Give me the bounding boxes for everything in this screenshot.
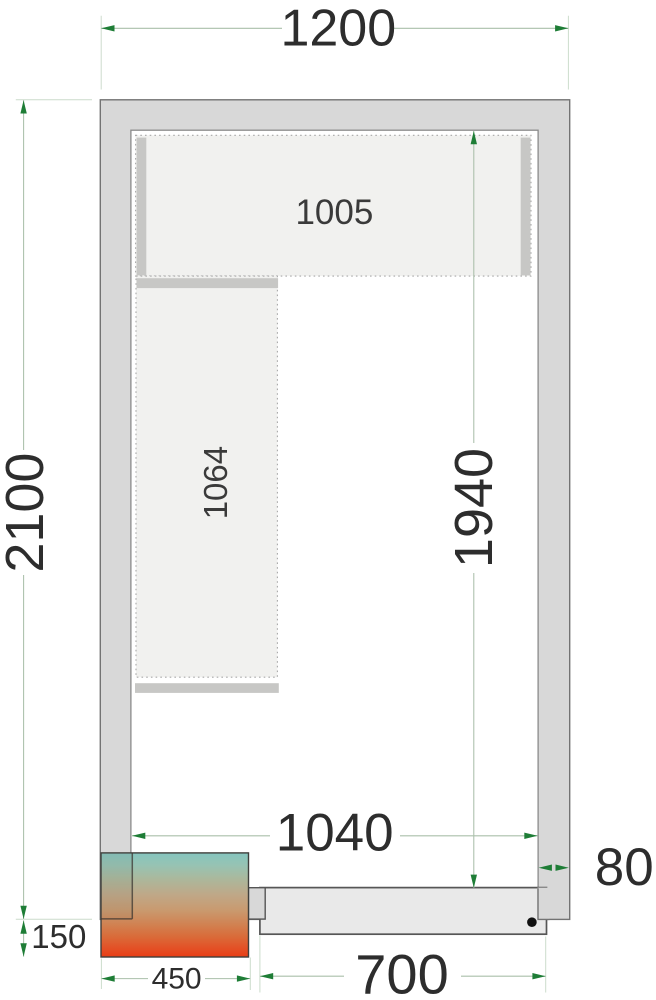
svg-text:1005: 1005	[295, 193, 373, 232]
svg-text:1200: 1200	[280, 0, 396, 57]
svg-text:2100: 2100	[0, 453, 55, 573]
svg-text:1940: 1940	[444, 448, 504, 568]
svg-text:700: 700	[355, 942, 448, 1000]
svg-text:1040: 1040	[276, 804, 394, 863]
svg-text:1064: 1064	[197, 446, 234, 519]
svg-text:80: 80	[595, 838, 654, 897]
svg-text:450: 450	[152, 963, 202, 996]
svg-text:150: 150	[31, 918, 86, 955]
